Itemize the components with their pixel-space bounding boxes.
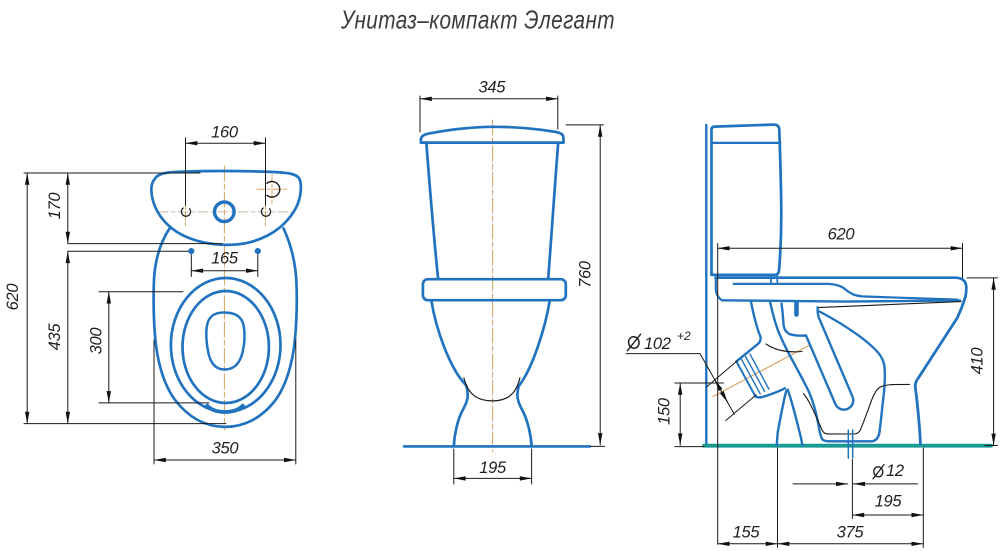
- svg-text:620: 620: [828, 226, 856, 244]
- svg-text:195: 195: [875, 493, 903, 511]
- svg-text:300: 300: [88, 327, 106, 355]
- svg-text:620: 620: [4, 283, 22, 311]
- svg-text:155: 155: [733, 524, 761, 542]
- svg-text:102: 102: [644, 335, 671, 353]
- svg-text:150: 150: [656, 397, 674, 425]
- svg-text:Унитаз–компакт Элегант: Унитаз–компакт Элегант: [340, 5, 615, 35]
- svg-text:760: 760: [577, 260, 595, 288]
- svg-text:170: 170: [46, 192, 64, 220]
- svg-text:+2: +2: [677, 329, 691, 343]
- svg-text:345: 345: [478, 79, 506, 97]
- svg-text:165: 165: [211, 250, 239, 268]
- svg-text:375: 375: [837, 524, 865, 542]
- svg-text:410: 410: [969, 347, 987, 375]
- svg-text:435: 435: [46, 323, 64, 351]
- svg-text:350: 350: [212, 440, 240, 458]
- svg-text:12: 12: [886, 462, 904, 480]
- svg-text:195: 195: [479, 459, 507, 477]
- svg-text:160: 160: [211, 124, 239, 142]
